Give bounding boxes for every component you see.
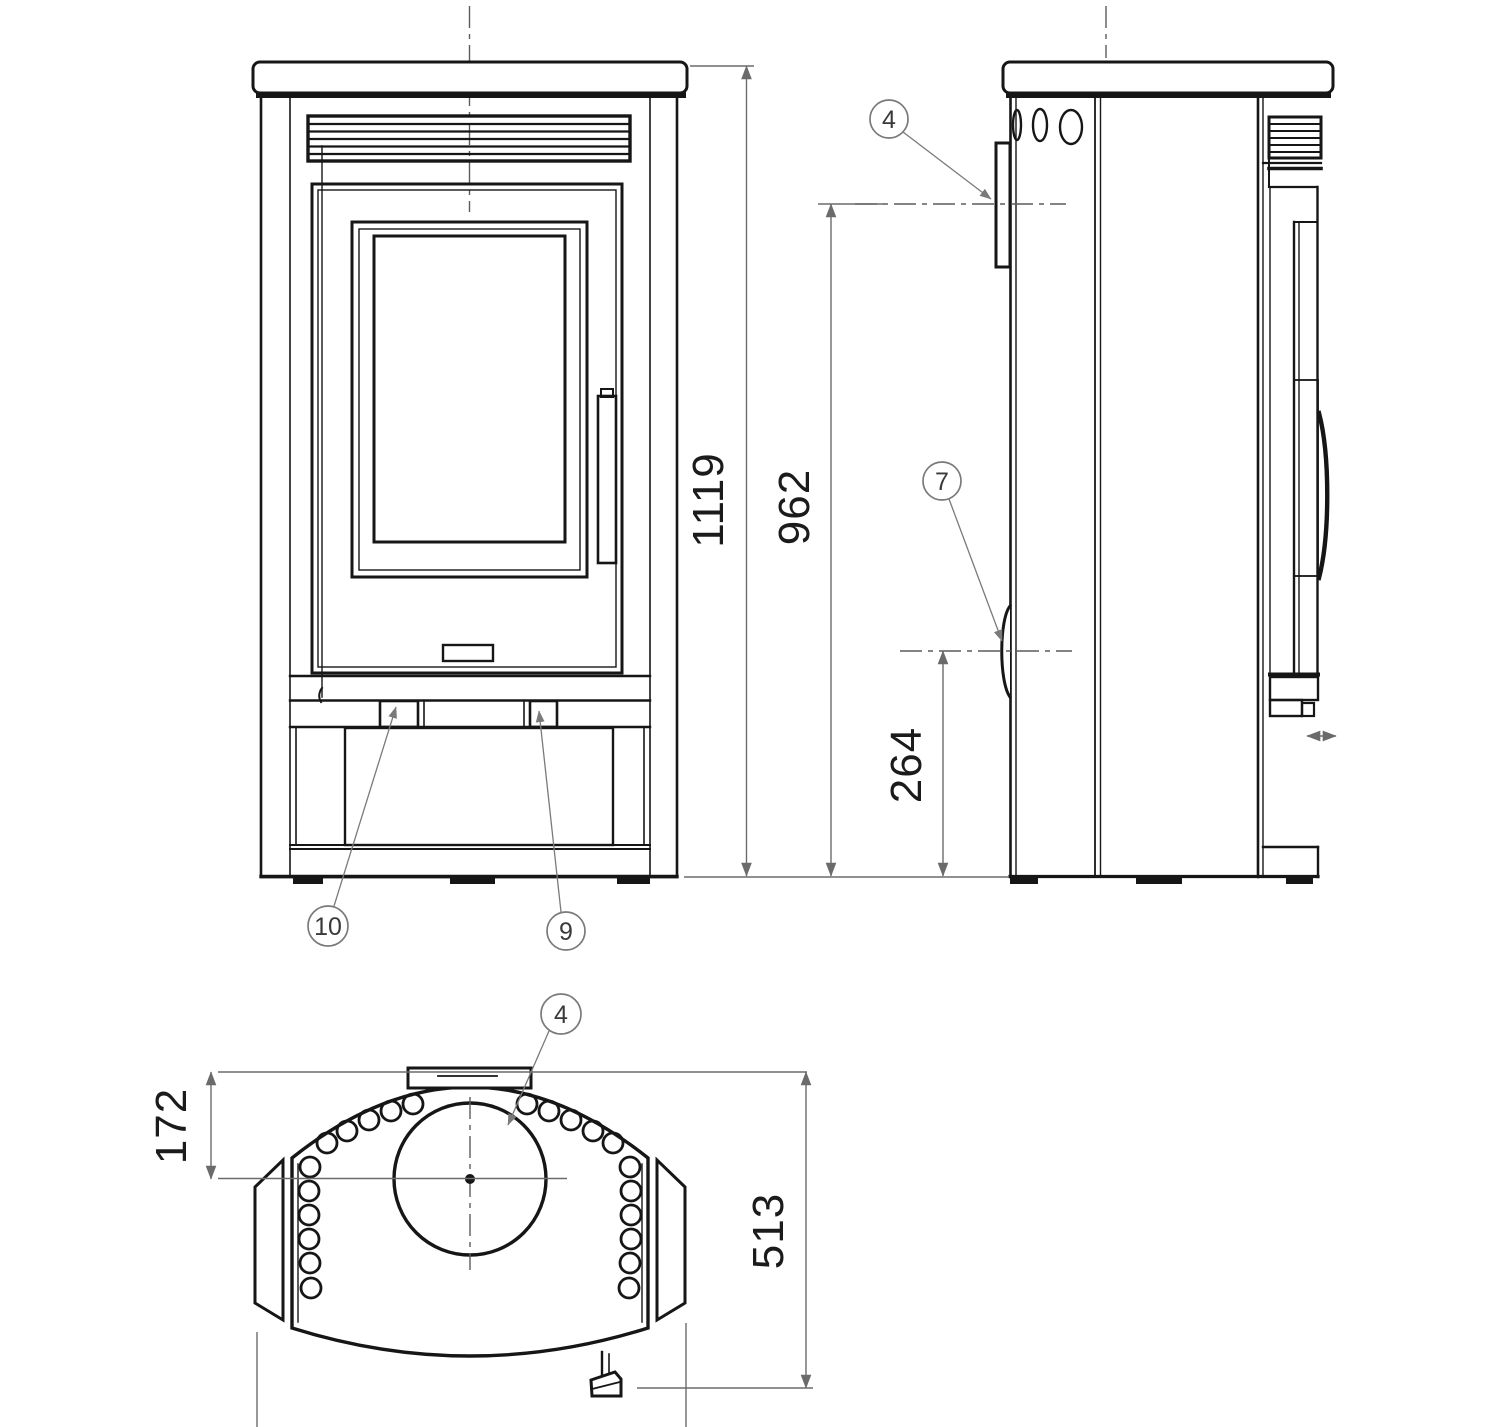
leader-7 [949,499,1002,641]
ash-lip-end [1302,703,1314,716]
dim-text-flue-offset: 172 [147,1088,196,1164]
door-bottom-rail [1270,677,1318,700]
foot [617,877,650,884]
plinth-button-left [380,701,418,727]
foot [450,877,495,884]
foot [1286,877,1313,884]
foot [1010,877,1038,884]
foot [293,877,323,884]
stove-dimension-drawing: 1119 962 264 172 513 4 7 10 9 4 [0,0,1500,1427]
window-frame-outer [352,222,587,577]
door-window [352,222,587,577]
plinth-panel [345,728,613,845]
back-spigot-tab [408,1068,531,1088]
dim-text-overall-height: 1119 [684,452,733,547]
right-side-panel [657,1160,685,1320]
window-glass [374,236,565,542]
callout-text-10: 10 [314,913,342,941]
dim-text-lower-connection: 264 [882,727,931,803]
dim-text-rear-flue-height: 962 [770,469,819,545]
front-body [261,96,677,877]
handle-plate [1294,380,1318,576]
door-handle [598,396,616,563]
front-vent-grille [308,116,630,161]
front-top-plate [253,62,687,93]
callout-text-4-top: 4 [554,1001,568,1029]
plinth [290,676,650,849]
dim-text-depth: 513 [744,1193,793,1269]
plinth-button-right [530,701,557,727]
callout-text-7: 7 [935,468,949,496]
vent-slot [1033,109,1047,141]
ash-lip [1270,700,1302,716]
left-side-panel [255,1160,283,1320]
rear-flue-spigot [996,143,1010,267]
latch-knob [591,1372,621,1396]
vent-slot [1060,110,1082,144]
side-door-handle [1319,413,1327,578]
leader-4-side [903,132,991,199]
foot [1136,877,1182,884]
top-view [255,1068,685,1396]
nameplate [443,645,493,661]
door-inner-line [318,190,616,667]
leader-9 [539,711,561,912]
window-frame-mid [359,229,580,570]
callout-text-9: 9 [559,918,573,946]
side-front-grille [1269,117,1321,158]
callout-text-4-side: 4 [882,106,896,134]
top-vent-holes [1013,109,1082,144]
drawing-canvas: 1119 962 264 172 513 4 7 10 9 4 [0,0,1500,1427]
vent-slot [1013,110,1021,140]
side-top-plate [1003,62,1333,93]
front-view [253,6,687,884]
callouts: 4 7 10 9 4 [308,100,1002,1125]
